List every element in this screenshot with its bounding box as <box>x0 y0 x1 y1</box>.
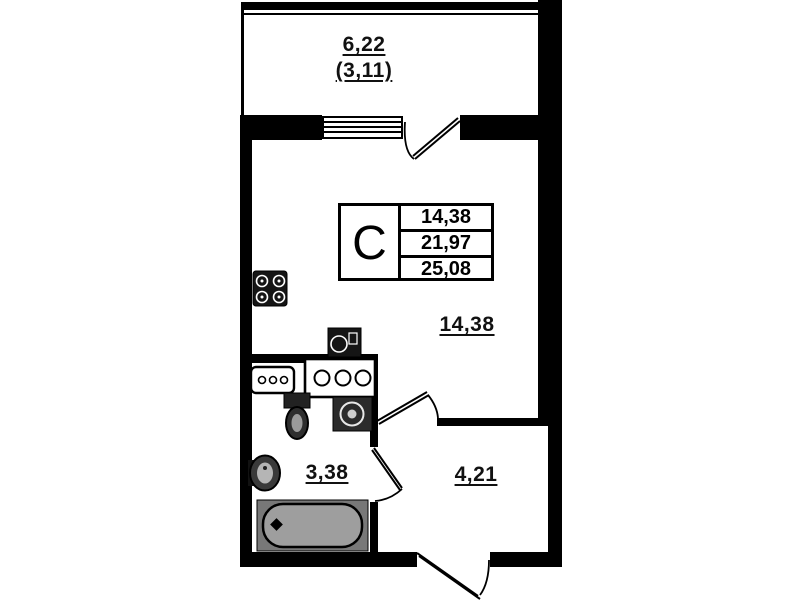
kitchen-sink-icon <box>328 328 361 357</box>
fixtures-layer <box>0 0 799 600</box>
hallway-area-label: 4,21 <box>421 463 531 487</box>
floor-plan: 6,22 (3,11) 14,38 3,38 4,21 C 14,38 21,9… <box>0 0 799 600</box>
bathroom-area-label: 3,38 <box>272 461 382 485</box>
living-area-label: 14,38 <box>412 313 522 337</box>
unit-type-cell: C <box>341 206 401 281</box>
stove-icon <box>253 271 287 306</box>
counter-icon <box>305 359 375 397</box>
unit-area-row: 25,08 <box>401 258 491 281</box>
bathtub-icon <box>257 500 368 551</box>
cabinet-icon <box>251 367 294 393</box>
unit-area-row: 14,38 <box>401 206 491 232</box>
toilet-icon <box>284 393 310 439</box>
unit-info-table: C 14,38 21,97 25,08 <box>338 203 494 281</box>
washing-machine-icon <box>333 397 372 431</box>
balcony-reduced-area-label: (3,11) <box>309 59 419 83</box>
unit-area-row: 21,97 <box>401 232 491 258</box>
balcony-area-label: 6,22 <box>309 33 419 57</box>
